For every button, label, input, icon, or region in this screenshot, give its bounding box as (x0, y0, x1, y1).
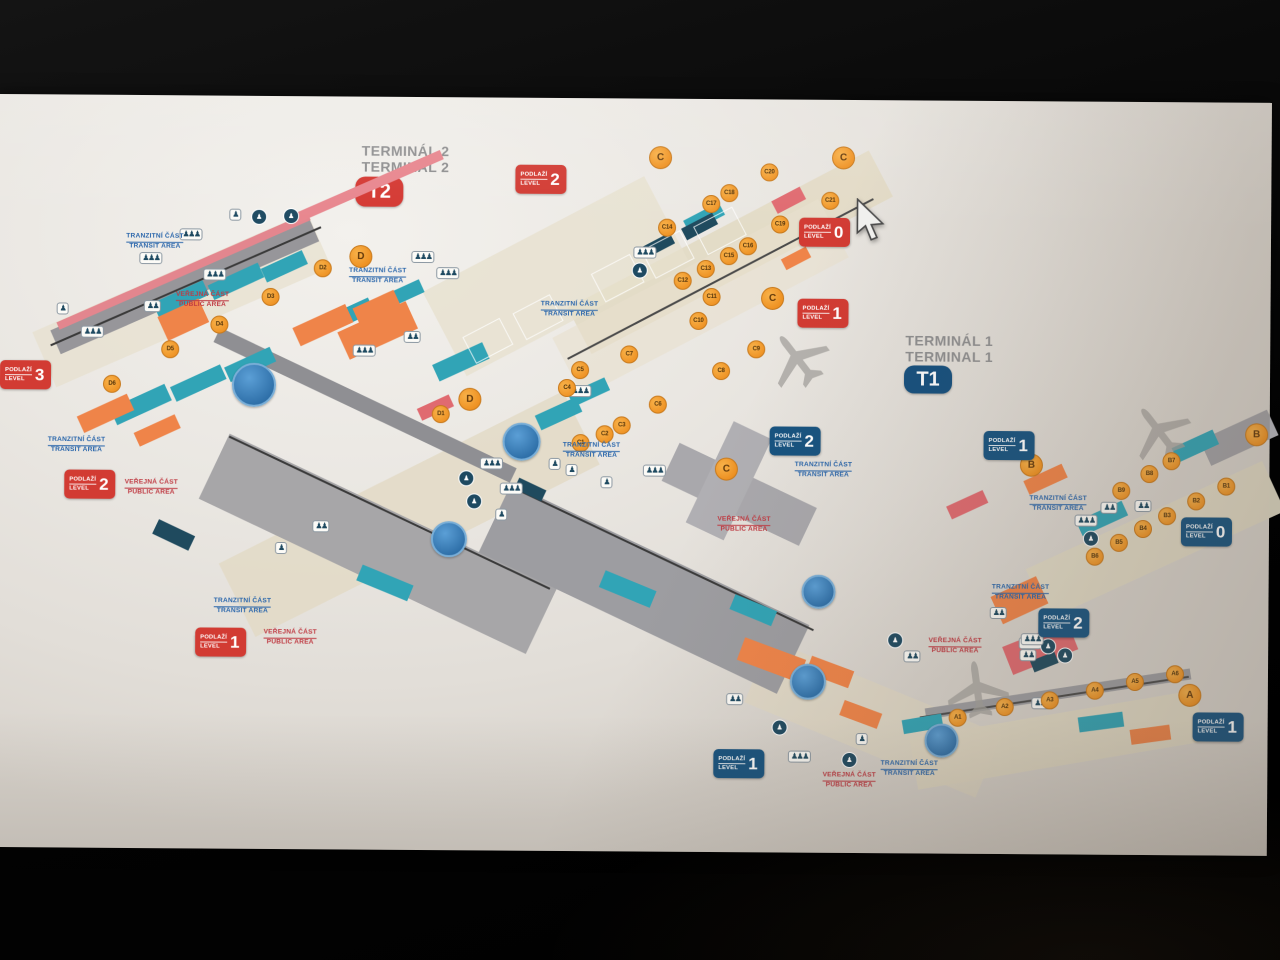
level-badge[interactable]: PODLAŽÍLEVEL1 (713, 749, 765, 778)
building-block (134, 414, 181, 446)
gate-marker-b8[interactable]: B8 (1140, 465, 1158, 483)
level-number: 1 (1227, 719, 1237, 736)
apron-strip (1026, 461, 1280, 619)
level-word: LEVEL (802, 314, 829, 323)
amenity-icon[interactable]: ♟♟ (726, 693, 743, 705)
gate-marker-b6[interactable]: B6 (1086, 548, 1104, 566)
pier-marker-a[interactable]: A (1178, 684, 1201, 707)
transit-area-line2: TRANSIT AREA (126, 243, 183, 252)
amenity-icon[interactable]: ♟ (1057, 647, 1073, 663)
gate-marker-b7[interactable]: B7 (1162, 452, 1180, 470)
building-block (77, 394, 135, 433)
gate-marker-a1[interactable]: A1 (949, 709, 967, 727)
level-word: LEVEL (775, 441, 802, 450)
monitor-photo: TERMINÁL 2 TERMINAL 2 T2 TERMINÁL 1 TERM… (0, 0, 1280, 960)
gate-marker-c3[interactable]: C3 (613, 416, 631, 434)
public-area-line2: PUBLIC AREA (263, 639, 316, 648)
gate-marker-c8[interactable]: C8 (712, 362, 730, 380)
hub-node (801, 575, 835, 609)
pier-marker-b[interactable]: B (1245, 423, 1268, 446)
transit-area-line1: TRANZITNÍ ČÁST (214, 597, 271, 607)
gate-marker-c15[interactable]: C15 (720, 247, 738, 265)
amenity-icon[interactable]: ♟ (229, 209, 241, 221)
level-badge-words: PODLAŽÍLEVEL (1043, 614, 1070, 632)
public-area-line1: VEŘEJNÁ ČÁST (176, 291, 229, 301)
pier-marker-d[interactable]: D (458, 388, 481, 411)
gate-marker-a5[interactable]: A5 (1126, 673, 1144, 691)
amenity-icon[interactable]: ♟♟ (312, 520, 329, 532)
transit-area-line2: TRANSIT AREA (214, 607, 271, 616)
gate-marker-c11[interactable]: C11 (703, 288, 721, 306)
gate-marker-c10[interactable]: C10 (689, 312, 707, 330)
amenity-icon[interactable]: ♟♟ (903, 650, 920, 662)
level-badge[interactable]: PODLAŽÍLEVEL2 (515, 165, 567, 194)
level-word: LEVEL (804, 233, 831, 242)
amenity-icon[interactable]: ♟ (887, 632, 903, 648)
amenity-icon[interactable]: ♟♟ (1134, 500, 1151, 512)
transit-area-label: TRANZITNÍ ČÁSTTRANSIT AREA (881, 760, 939, 779)
level-badge[interactable]: PODLAŽÍLEVEL1 (1193, 712, 1245, 741)
terminal1-title-en: TERMINAL 1 (894, 348, 1004, 365)
level-word: LEVEL (1198, 727, 1225, 736)
gate-marker-c2[interactable]: C2 (596, 425, 614, 443)
amenity-icon[interactable]: ♟♟♟ (643, 465, 666, 477)
amenity-icon[interactable]: ♟♟♟ (203, 268, 226, 280)
transit-area-line1: TRANZITNÍ ČÁST (795, 461, 852, 471)
amenity-icon[interactable]: ♟♟♟ (436, 267, 459, 279)
transit-area-line1: TRANZITNÍ ČÁST (881, 760, 938, 770)
floor-word: PODLAŽÍ (1186, 523, 1213, 533)
terminal1-badge[interactable]: T1 (904, 365, 952, 393)
public-area-line1: VEŘEJNÁ ČÁST (264, 629, 317, 639)
public-area-line1: VEŘEJNÁ ČÁST (928, 637, 981, 647)
gate-marker-c5[interactable]: C5 (571, 361, 589, 379)
hub-node (431, 521, 467, 557)
floor-word: PODLAŽÍ (520, 170, 547, 180)
amenity-icon[interactable]: ♟ (57, 302, 69, 314)
level-badge-words: PODLAŽÍLEVEL (804, 223, 831, 241)
public-area-line2: PUBLIC AREA (928, 647, 981, 656)
public-area-label: VEŘEJNÁ ČÁSTPUBLIC AREA (928, 637, 981, 656)
transit-area-line2: TRANSIT AREA (349, 277, 406, 286)
amenity-icon[interactable]: ♟ (275, 542, 287, 554)
amenity-icon[interactable]: ♟ (549, 458, 561, 470)
transit-area-label: TRANZITNÍ ČÁSTTRANSIT AREA (992, 584, 1050, 603)
level-word: LEVEL (1043, 623, 1070, 632)
level-badge[interactable]: PODLAŽÍLEVEL2 (1038, 608, 1090, 637)
level-number: 2 (550, 171, 560, 188)
amenity-icon[interactable]: ♟ (566, 464, 578, 476)
public-area-label: VEŘEJNÁ ČÁSTPUBLIC AREA (822, 771, 875, 790)
transit-area-line2: TRANSIT AREA (992, 594, 1049, 603)
level-badge-words: PODLAŽÍLEVEL (802, 304, 829, 322)
level-badge-words: PODLAŽÍLEVEL (718, 755, 745, 773)
public-area-line1: VEŘEJNÁ ČÁST (823, 771, 876, 781)
gate-marker-a6[interactable]: A6 (1166, 665, 1184, 683)
public-area-label: VEŘEJNÁ ČÁSTPUBLIC AREA (176, 291, 229, 310)
amenity-icon[interactable]: ♟♟♟ (353, 345, 376, 357)
level-number: 1 (832, 305, 842, 322)
amenity-icon[interactable]: ♟♟♟ (1074, 515, 1097, 527)
public-area-label: VEŘEJNÁ ČÁSTPUBLIC AREA (263, 629, 316, 648)
gate-marker-d6[interactable]: D6 (103, 375, 121, 393)
building-block (946, 490, 988, 519)
gate-marker-b1[interactable]: B1 (1217, 478, 1235, 496)
level-badge-words: PODLAŽÍLEVEL (5, 366, 32, 384)
gate-marker-c18[interactable]: C18 (720, 184, 738, 202)
floor-word: PODLAŽÍ (1043, 614, 1070, 624)
level-number: 2 (804, 433, 814, 450)
level-word: LEVEL (520, 180, 547, 189)
gate-marker-c7[interactable]: C7 (620, 345, 638, 363)
level-number: 1 (748, 755, 758, 772)
airport-map: TERMINÁL 2 TERMINAL 2 T2 TERMINÁL 1 TERM… (0, 94, 1272, 856)
level-badge[interactable]: PODLAŽÍLEVEL0 (1181, 517, 1233, 546)
amenity-icon[interactable]: ♟♟♟ (139, 252, 162, 264)
level-badge[interactable]: PODLAŽÍLEVEL0 (799, 218, 851, 247)
gate-marker-b5[interactable]: B5 (1110, 534, 1128, 552)
terminal1-title: TERMINÁL 1 TERMINAL 1 (894, 332, 1004, 365)
transit-area-line1: TRANZITNÍ ČÁST (1029, 495, 1086, 505)
level-word: LEVEL (989, 446, 1016, 455)
amenity-icon[interactable]: ♟ (632, 262, 648, 278)
transit-area-line2: TRANSIT AREA (1029, 505, 1086, 514)
terminal2-title-cz: TERMINÁL 2 (352, 142, 460, 159)
transit-area-line1: TRANZITNÍ ČÁST (349, 267, 406, 277)
gate-marker-b3[interactable]: B3 (1158, 507, 1176, 525)
amenity-icon[interactable]: ♟ (856, 733, 868, 745)
gate-marker-b4[interactable]: B4 (1134, 520, 1152, 538)
public-area-line2: PUBLIC AREA (176, 301, 229, 310)
floor-word: PODLAŽÍ (1198, 718, 1225, 728)
amenity-icon[interactable]: ♟♟♟ (480, 457, 503, 469)
pier-marker-c[interactable]: C (715, 458, 738, 481)
gate-marker-b2[interactable]: B2 (1187, 492, 1205, 510)
gate-marker-d1[interactable]: D1 (432, 405, 450, 423)
level-word: LEVEL (5, 375, 32, 384)
floor-word: PODLAŽÍ (802, 304, 829, 314)
transit-area-label: TRANZITNÍ ČÁSTTRANSIT AREA (1029, 495, 1087, 514)
transit-area-label: TRANZITNÍ ČÁSTTRANSIT AREA (541, 301, 599, 320)
pier-marker-d[interactable]: D (349, 245, 372, 268)
gate-marker-c16[interactable]: C16 (739, 237, 757, 255)
gate-marker-a4[interactable]: A4 (1086, 682, 1104, 700)
level-number: 1 (230, 634, 240, 651)
gate-marker-c12[interactable]: C12 (674, 272, 692, 290)
transit-area-line1: TRANZITNÍ ČÁST (126, 233, 183, 243)
transit-area-label: TRANZITNÍ ČÁSTTRANSIT AREA (126, 233, 184, 252)
level-number: 2 (99, 476, 109, 493)
pier-marker-c[interactable]: C (761, 287, 784, 310)
transit-area-line2: TRANSIT AREA (48, 446, 105, 455)
floor-word: PODLAŽÍ (5, 366, 32, 376)
amenity-icon[interactable]: ♟♟ (404, 331, 421, 343)
floor-word: PODLAŽÍ (775, 432, 802, 442)
amenity-icon[interactable]: ♟ (283, 208, 299, 224)
amenity-icon[interactable]: ♟ (841, 752, 857, 768)
amenity-icon[interactable]: ♟ (495, 509, 507, 521)
public-area-line2: PUBLIC AREA (125, 489, 178, 498)
airplane-icon (1112, 385, 1211, 484)
level-badge-words: PODLAŽÍLEVEL (69, 475, 96, 493)
gate-marker-c9[interactable]: C9 (747, 340, 765, 358)
level-word: LEVEL (200, 642, 227, 651)
gate-marker-c20[interactable]: C20 (760, 163, 778, 181)
transit-area-line1: TRANZITNÍ ČÁST (992, 584, 1049, 594)
gate-marker-b9[interactable]: B9 (1112, 482, 1130, 500)
floor-word: PODLAŽÍ (989, 437, 1016, 447)
gate-marker-c17[interactable]: C17 (702, 195, 720, 213)
level-word: LEVEL (718, 764, 745, 773)
amenity-icon[interactable]: ♟♟ (990, 607, 1007, 619)
level-badge-words: PODLAŽÍLEVEL (989, 437, 1016, 455)
amenity-icon[interactable]: ♟♟♟ (500, 483, 523, 495)
gate-marker-c6[interactable]: C6 (649, 396, 667, 414)
amenity-icon[interactable]: ♟♟♟ (411, 251, 434, 263)
transit-area-line1: TRANZITNÍ ČÁST (563, 442, 620, 452)
level-badge-words: PODLAŽÍLEVEL (200, 633, 227, 651)
public-area-line2: PUBLIC AREA (822, 782, 875, 791)
level-badge-words: PODLAŽÍLEVEL (775, 432, 802, 450)
transit-area-line2: TRANSIT AREA (795, 471, 852, 480)
gate-marker-c13[interactable]: C13 (697, 260, 715, 278)
level-badge[interactable]: PODLAŽÍLEVEL1 (195, 627, 247, 656)
transit-area-label: TRANZITNÍ ČÁSTTRANSIT AREA (349, 267, 407, 286)
terminal1-title-cz: TERMINÁL 1 (894, 332, 1004, 349)
transit-area-line2: TRANSIT AREA (881, 770, 938, 779)
hub-node (232, 363, 276, 407)
level-badge[interactable]: PODLAŽÍLEVEL2 (769, 426, 821, 455)
transit-area-label: TRANZITNÍ ČÁSTTRANSIT AREA (563, 442, 621, 461)
amenity-icon[interactable]: ♟ (458, 470, 474, 486)
building-block (152, 519, 195, 551)
amenity-icon[interactable]: ♟♟ (1100, 502, 1117, 514)
floor-word: PODLAŽÍ (718, 755, 745, 765)
public-area-label: VEŘEJNÁ ČÁSTPUBLIC AREA (125, 479, 178, 498)
pier-marker-c[interactable]: C (832, 146, 855, 169)
level-number: 0 (1216, 524, 1226, 541)
level-number: 0 (834, 224, 844, 241)
gate-marker-c21[interactable]: C21 (821, 192, 839, 210)
floor-word: PODLAŽÍ (200, 633, 227, 643)
floor-word: PODLAŽÍ (804, 223, 831, 233)
amenity-icon[interactable]: ♟ (466, 493, 482, 509)
public-area-label: VEŘEJNÁ ČÁSTPUBLIC AREA (717, 516, 770, 535)
level-badge-words: PODLAŽÍLEVEL (1198, 718, 1225, 736)
mouse-cursor (855, 198, 885, 247)
floor-word: PODLAŽÍ (69, 475, 96, 485)
level-badge-words: PODLAŽÍLEVEL (1186, 523, 1213, 541)
amenity-icon[interactable]: ♟♟♟ (81, 326, 104, 338)
amenity-icon[interactable]: ♟ (600, 476, 612, 488)
gate-marker-a2[interactable]: A2 (996, 698, 1014, 716)
public-area-line1: VEŘEJNÁ ČÁST (717, 516, 770, 526)
amenity-icon[interactable]: ♟ (772, 719, 788, 735)
monitor-screen: TERMINÁL 2 TERMINAL 2 T2 TERMINÁL 1 TERM… (0, 94, 1272, 856)
transit-area-label: TRANZITNÍ ČÁSTTRANSIT AREA (795, 461, 853, 480)
level-number: 2 (1073, 615, 1083, 632)
gate-marker-d4[interactable]: D4 (210, 316, 228, 334)
level-number: 3 (35, 366, 45, 383)
level-word: LEVEL (1186, 532, 1213, 541)
gate-marker-d2[interactable]: D2 (314, 259, 332, 277)
transit-area-label: TRANZITNÍ ČÁSTTRANSIT AREA (48, 436, 106, 455)
amenity-icon[interactable]: ♟♟ (1019, 649, 1036, 661)
gate-marker-c4[interactable]: C4 (558, 379, 576, 397)
level-word: LEVEL (69, 485, 96, 494)
amenity-icon[interactable]: ♟♟♟ (788, 751, 811, 763)
transit-area-line1: TRANZITNÍ ČÁST (541, 301, 598, 311)
level-badge[interactable]: PODLAŽÍLEVEL1 (983, 431, 1035, 460)
transit-area-line1: TRANZITNÍ ČÁST (48, 436, 105, 446)
gate-marker-d3[interactable]: D3 (262, 288, 280, 306)
level-badge-words: PODLAŽÍLEVEL (520, 170, 547, 188)
transit-area-line2: TRANSIT AREA (541, 311, 598, 320)
transit-area-line2: TRANSIT AREA (563, 452, 620, 461)
building-block (170, 364, 227, 401)
public-area-line2: PUBLIC AREA (717, 526, 770, 535)
gate-marker-d5[interactable]: D5 (161, 340, 179, 358)
gate-marker-a3[interactable]: A3 (1041, 691, 1059, 709)
gate-marker-c19[interactable]: C19 (771, 215, 789, 233)
amenity-icon[interactable]: ♟♟♟ (633, 246, 656, 258)
level-badge[interactable]: PODLAŽÍLEVEL1 (797, 299, 849, 328)
hub-node (790, 664, 826, 700)
level-badge[interactable]: PODLAŽÍLEVEL3 (0, 360, 51, 389)
amenity-icon[interactable]: ♟ (1083, 531, 1099, 547)
pier-marker-c[interactable]: C (649, 146, 672, 169)
public-area-line1: VEŘEJNÁ ČÁST (125, 479, 178, 489)
hub-node (502, 423, 540, 461)
amenity-icon[interactable]: ♟ (251, 209, 267, 225)
level-number: 1 (1018, 437, 1028, 454)
transit-area-label: TRANZITNÍ ČÁSTTRANSIT AREA (214, 597, 272, 616)
gate-marker-c14[interactable]: C14 (658, 219, 676, 237)
amenity-icon[interactable]: ♟♟ (144, 300, 161, 312)
level-badge[interactable]: PODLAŽÍLEVEL2 (64, 470, 116, 499)
